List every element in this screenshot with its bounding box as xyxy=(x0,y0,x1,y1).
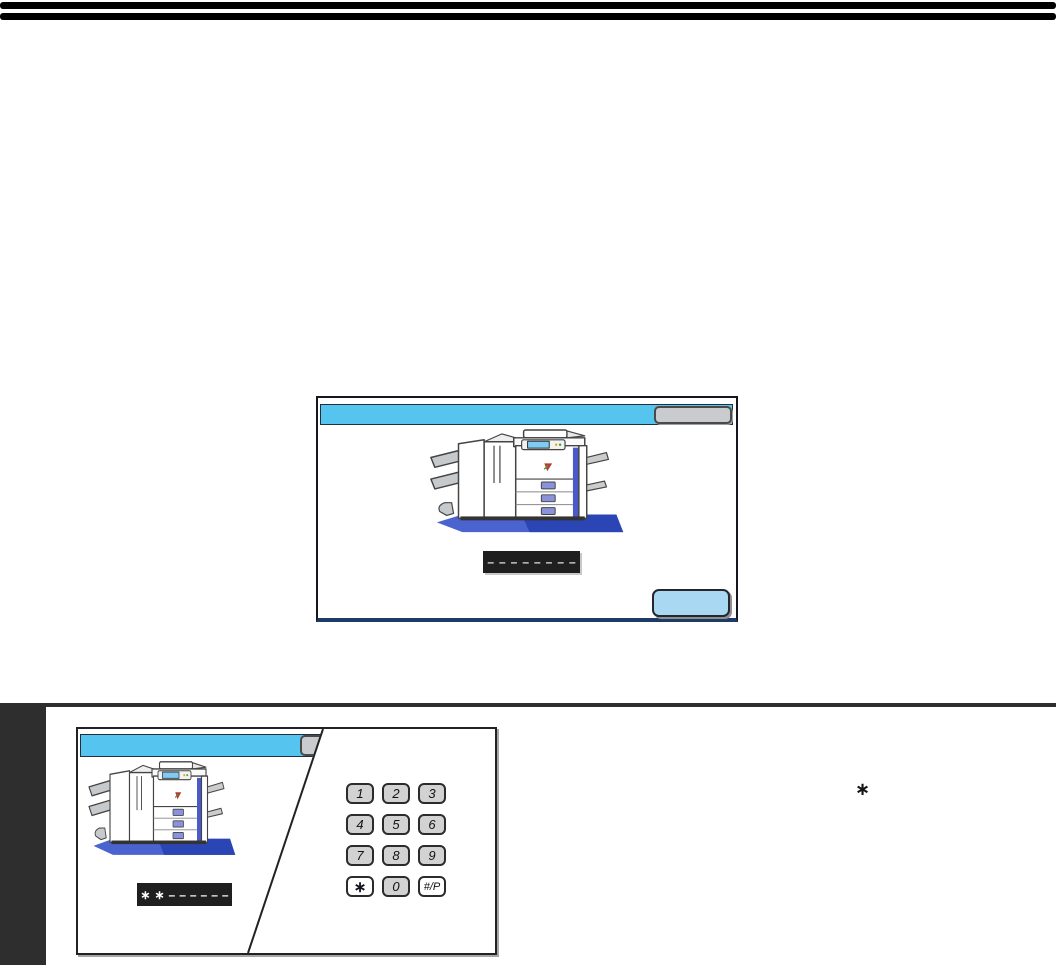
key-1[interactable]: 1 xyxy=(346,783,374,804)
key-4[interactable]: 4 xyxy=(346,814,374,835)
key-7[interactable]: 7 xyxy=(346,845,374,866)
screen-header-button[interactable] xyxy=(654,406,732,424)
page-top-rule-1 xyxy=(0,2,1056,9)
screen-header-bar xyxy=(80,734,322,757)
touchscreen-figure: –––––––– xyxy=(316,396,738,622)
password-display: –––––––– xyxy=(483,551,580,573)
key-8[interactable]: 8 xyxy=(382,845,410,866)
login-procedure-figure: ∗∗–––––– 1 2 3 4 5 6 7 8 9 ∗ 0 #/P xyxy=(76,727,497,955)
key-hash-p[interactable]: #/P xyxy=(418,876,446,897)
key-9[interactable]: 9 xyxy=(418,845,446,866)
key-6[interactable]: 6 xyxy=(418,814,446,835)
chapter-side-tab xyxy=(0,703,46,965)
key-0[interactable]: 0 xyxy=(382,876,410,897)
asterisk-annotation: ∗ xyxy=(855,779,870,800)
section-divider-rule xyxy=(0,703,1056,707)
key-3[interactable]: 3 xyxy=(418,783,446,804)
numeric-keypad: 1 2 3 4 5 6 7 8 9 ∗ 0 #/P xyxy=(346,783,446,897)
password-display: ∗∗–––––– xyxy=(137,883,232,906)
key-5[interactable]: 5 xyxy=(382,814,410,835)
key-star[interactable]: ∗ xyxy=(346,876,374,897)
key-2[interactable]: 2 xyxy=(382,783,410,804)
ok-button[interactable] xyxy=(652,589,730,617)
printer-illustration xyxy=(83,760,248,862)
printer-illustration xyxy=(423,428,640,540)
page-top-rule-2 xyxy=(0,13,1056,20)
screen-header-button[interactable] xyxy=(300,735,324,756)
